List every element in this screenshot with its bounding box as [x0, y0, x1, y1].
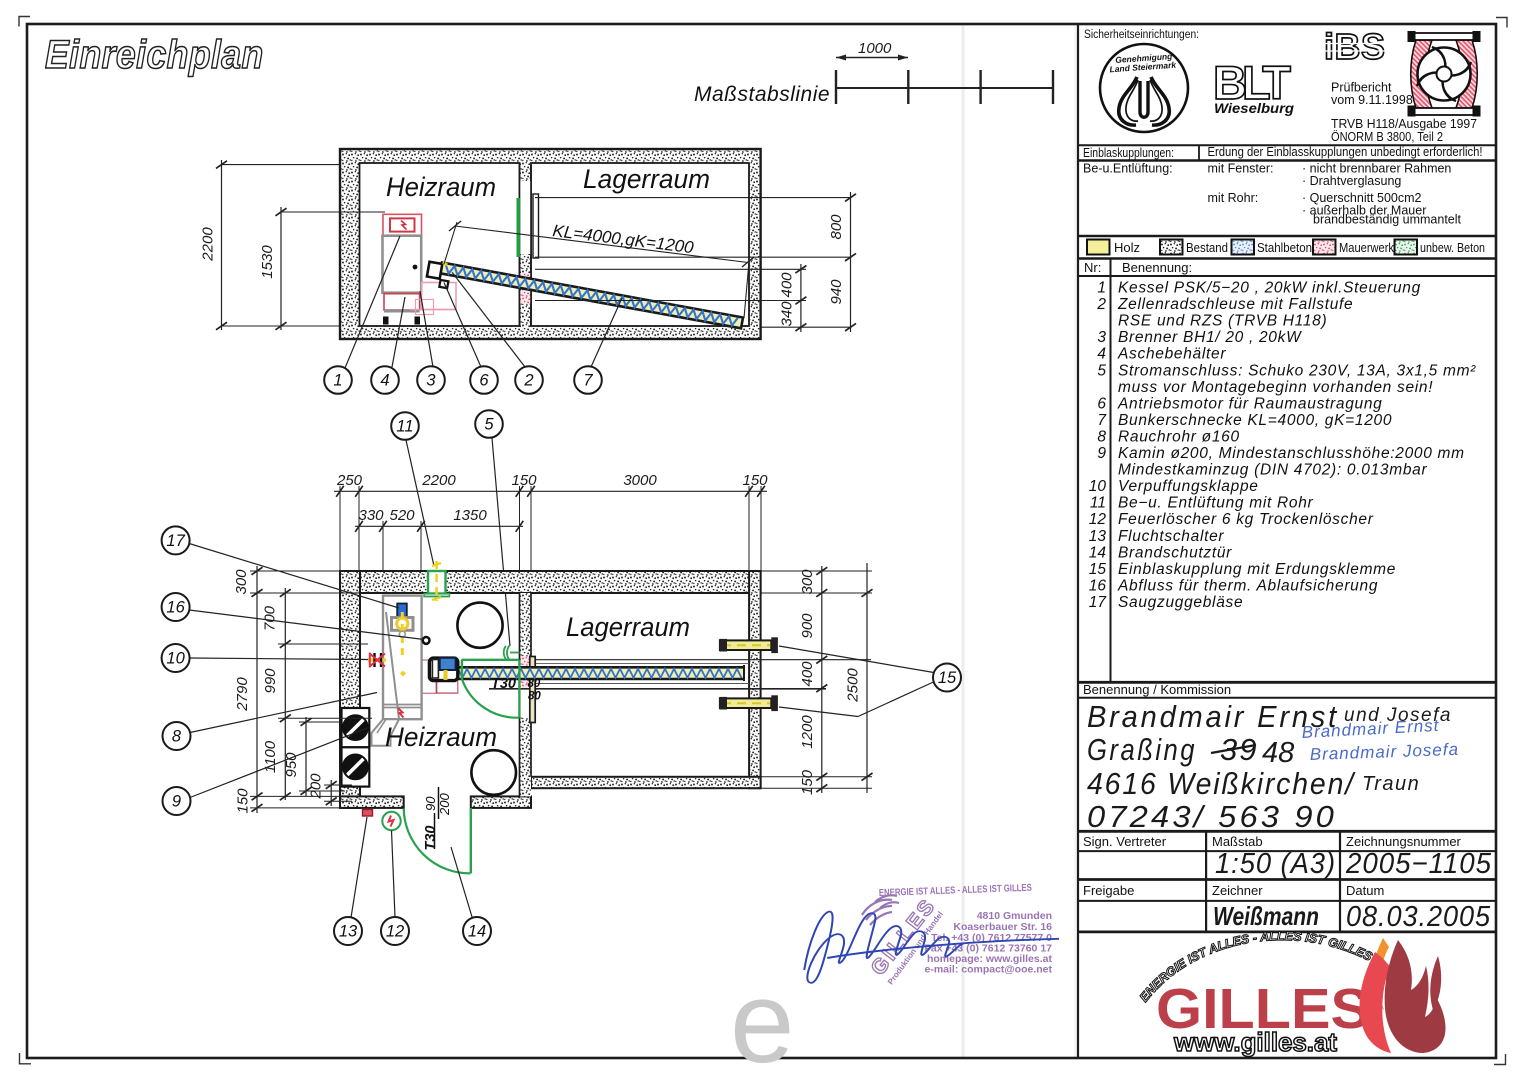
svg-text:4: 4	[1097, 346, 1106, 363]
svg-text:6: 6	[479, 372, 489, 390]
svg-text:2005−1105: 2005−1105	[1345, 848, 1492, 880]
svg-text:520: 520	[389, 507, 415, 524]
svg-text:brandbeständig ummantelt: brandbeständig ummantelt	[1313, 212, 1462, 226]
svg-text:Datum: Datum	[1346, 883, 1384, 898]
svg-text:250: 250	[336, 472, 363, 489]
svg-text:150: 150	[799, 769, 816, 795]
svg-text:90: 90	[423, 796, 438, 811]
svg-text:2: 2	[523, 372, 533, 390]
svg-text:80: 80	[528, 691, 541, 703]
svg-text:Kamin ø200, Mindestanschlusshö: Kamin ø200, Mindestanschlusshöhe:2000 mm	[1118, 445, 1465, 462]
svg-text:17: 17	[1089, 594, 1108, 611]
svg-text:T30: T30	[423, 826, 439, 851]
svg-text:13: 13	[339, 923, 358, 941]
svg-text:10: 10	[1089, 478, 1107, 495]
svg-text:900: 900	[799, 613, 816, 639]
svg-text:Zeichner: Zeichner	[1212, 883, 1263, 898]
svg-text:Verpuffungsklappe: Verpuffungsklappe	[1118, 478, 1259, 495]
svg-text:e: e	[730, 957, 795, 1080]
svg-text:1:50 (A3): 1:50 (A3)	[1215, 848, 1336, 880]
svg-text:Brenner BH1/ 20 , 20kW: Brenner BH1/ 20 , 20kW	[1118, 329, 1302, 346]
svg-text:Stahlbeton: Stahlbeton	[1257, 241, 1312, 255]
svg-text:2200: 2200	[421, 472, 456, 489]
svg-text:07243/ 563 90: 07243/ 563 90	[1087, 799, 1337, 834]
svg-text:11: 11	[1090, 495, 1106, 512]
svg-text:80: 80	[528, 678, 541, 690]
svg-text:300: 300	[799, 569, 816, 595]
svg-text:14: 14	[468, 923, 486, 941]
svg-text:1350: 1350	[453, 507, 487, 524]
svg-text:2: 2	[1096, 296, 1106, 313]
svg-text:Stromanschluss: Schuko 230V, 1: Stromanschluss: Schuko 230V, 13A, 3x1,5 …	[1118, 362, 1476, 379]
svg-text:7: 7	[1097, 412, 1107, 429]
svg-text:Freigabe: Freigabe	[1083, 883, 1134, 898]
svg-text:3: 3	[426, 372, 436, 390]
svg-text:mit Rohr:: mit Rohr:	[1208, 191, 1259, 205]
svg-text:Einreichplan: Einreichplan	[45, 32, 264, 76]
svg-text:400: 400	[799, 661, 816, 687]
svg-text:Erdung der Einblasskupplungen: Erdung der Einblasskupplungen unbedingt …	[1208, 145, 1483, 159]
svg-text:340: 340	[779, 301, 796, 327]
svg-text:1200: 1200	[799, 715, 816, 749]
svg-text:Maßstabslinie: Maßstabslinie	[694, 83, 830, 106]
svg-text:1530: 1530	[259, 245, 276, 279]
svg-text:www.gilles.at: www.gilles.at	[1173, 1027, 1337, 1057]
svg-text:T30: T30	[491, 676, 516, 692]
svg-text:unbew. Beton: unbew. Beton	[1420, 241, 1485, 255]
svg-text:4616 Weißkirchen/: 4616 Weißkirchen/	[1087, 766, 1356, 801]
svg-text:150: 150	[511, 472, 537, 489]
svg-text:mit Fenster:: mit Fenster:	[1208, 162, 1274, 176]
svg-text:Mauerwerk: Mauerwerk	[1339, 241, 1395, 255]
svg-text:1000: 1000	[858, 40, 892, 57]
svg-text:800: 800	[828, 214, 845, 240]
svg-text:3: 3	[1097, 329, 1106, 346]
svg-text:Sicherheitseinrichtungen:: Sicherheitseinrichtungen:	[1084, 29, 1199, 41]
svg-text:e-mail: compact@ooe.net: e-mail: compact@ooe.net	[924, 964, 1052, 976]
svg-text:12: 12	[1089, 511, 1107, 528]
svg-text:150: 150	[235, 788, 252, 814]
svg-text:Bestand: Bestand	[1186, 241, 1228, 255]
svg-text:940: 940	[828, 279, 845, 305]
svg-text:9: 9	[1097, 445, 1106, 462]
svg-text:400: 400	[779, 272, 796, 298]
svg-text:vom 9.11.1998: vom 9.11.1998	[1331, 93, 1413, 107]
svg-text:08.03.2005: 08.03.2005	[1346, 901, 1491, 933]
svg-text:2790: 2790	[234, 677, 251, 712]
svg-text:Zellenradschleuse mit Fallstuf: Zellenradschleuse mit Fallstufe	[1117, 296, 1353, 313]
svg-text:Fluchtschalter: Fluchtschalter	[1118, 528, 1224, 545]
svg-text:1: 1	[1097, 280, 1106, 297]
svg-text:Maßstab: Maßstab	[1212, 834, 1263, 849]
svg-text:ÖNORM B 3800, Teil 2: ÖNORM B 3800, Teil 2	[1331, 130, 1443, 144]
svg-text:11: 11	[396, 418, 413, 436]
svg-text:Be-u.Entlüftung:: Be-u.Entlüftung:	[1083, 162, 1173, 176]
svg-text:Bunkerschnecke KL=4000, gK=120: Bunkerschnecke KL=4000, gK=1200	[1118, 412, 1392, 429]
svg-text:6: 6	[1097, 395, 1106, 412]
svg-text:Benennung:: Benennung:	[1122, 260, 1192, 275]
svg-text:Mindestkaminzug (DIN 4702): 0.: Mindestkaminzug (DIN 4702): 0.013mbar	[1118, 462, 1427, 479]
svg-text:150: 150	[742, 472, 768, 489]
svg-text:3000: 3000	[623, 472, 657, 489]
svg-text:Holz: Holz	[1114, 241, 1140, 255]
svg-text:10: 10	[166, 650, 185, 668]
svg-text:Brandschutztür: Brandschutztür	[1118, 544, 1232, 561]
svg-text:200: 200	[308, 773, 325, 800]
svg-text:7: 7	[583, 372, 593, 390]
svg-text:8: 8	[172, 728, 182, 746]
svg-text:1: 1	[333, 372, 342, 390]
svg-text:17: 17	[166, 532, 185, 550]
svg-text:8: 8	[1097, 429, 1106, 446]
svg-text:Kessel PSK/5−20 , 20kW inkl.St: Kessel PSK/5−20 , 20kW inkl.Steuerung	[1118, 280, 1421, 297]
svg-text:Lagerraum: Lagerraum	[566, 612, 690, 642]
svg-text:16: 16	[166, 599, 185, 617]
svg-text:Benennung / Kommission: Benennung / Kommission	[1083, 682, 1231, 697]
svg-text:16: 16	[1089, 577, 1107, 594]
svg-text:· Drahtverglasung: · Drahtverglasung	[1302, 174, 1401, 188]
svg-text:Aschebehälter: Aschebehälter	[1117, 346, 1226, 363]
svg-text:4: 4	[380, 372, 389, 390]
svg-text:Weißmann: Weißmann	[1213, 901, 1319, 931]
svg-text:Sign. Vertreter: Sign. Vertreter	[1083, 834, 1167, 849]
svg-text:Zeichnungsnummer: Zeichnungsnummer	[1346, 834, 1462, 849]
svg-text:Einblaskupplung mit Erdungskle: Einblaskupplung mit Erdungsklemme	[1118, 561, 1396, 578]
svg-text:Graßing: Graßing	[1087, 732, 1197, 767]
svg-text:Abfluss für therm. Ablaufsiche: Abfluss für therm. Ablaufsicherung	[1117, 577, 1378, 594]
svg-text:RSE und RZS (TRVB H118): RSE und RZS (TRVB H118)	[1118, 313, 1327, 330]
svg-text:Saugzuggebläse: Saugzuggebläse	[1118, 594, 1243, 611]
svg-text:48: 48	[1262, 737, 1294, 769]
svg-text:muss vor Montagebeginn vorhand: muss vor Montagebeginn vorhanden sein!	[1118, 379, 1433, 396]
svg-text:300: 300	[233, 569, 250, 595]
svg-text:TRVB H118/Ausgabe 1997: TRVB H118/Ausgabe 1997	[1331, 117, 1477, 131]
svg-text:Nr:: Nr:	[1084, 260, 1101, 275]
svg-text:5: 5	[484, 416, 494, 434]
svg-text:5: 5	[1097, 362, 1106, 379]
svg-text:2200: 2200	[200, 227, 217, 262]
svg-text:12: 12	[386, 923, 404, 941]
svg-text:Traun: Traun	[1362, 773, 1420, 795]
svg-text:Rauchrohr ø160: Rauchrohr ø160	[1118, 429, 1240, 446]
svg-text:Heizraum: Heizraum	[386, 172, 496, 202]
svg-text:13: 13	[1089, 528, 1107, 545]
svg-text:2500: 2500	[845, 668, 862, 703]
svg-text:Wieselburg: Wieselburg	[1214, 100, 1294, 116]
svg-text:15: 15	[1089, 561, 1107, 578]
svg-text:330: 330	[358, 507, 384, 524]
svg-text:Einblaskupplungen:: Einblaskupplungen:	[1083, 146, 1174, 160]
svg-text:Antriebsmotor für Raumaustragu: Antriebsmotor für Raumaustragung	[1117, 395, 1383, 412]
svg-text:15: 15	[938, 669, 957, 687]
svg-text:700: 700	[262, 605, 279, 631]
svg-text:990: 990	[262, 668, 279, 694]
svg-text:9: 9	[172, 793, 181, 811]
svg-text:iBS: iBS	[1324, 26, 1386, 67]
svg-text:14: 14	[1089, 544, 1107, 561]
svg-text:Be−u. Entlüftung mit Rohr: Be−u. Entlüftung mit Rohr	[1118, 495, 1314, 512]
svg-text:Feuerlöscher 6 kg Trockenlösch: Feuerlöscher 6 kg Trockenlöscher	[1118, 511, 1374, 528]
svg-text:Lagerraum: Lagerraum	[583, 164, 710, 194]
svg-text:Heizraum: Heizraum	[385, 722, 497, 752]
